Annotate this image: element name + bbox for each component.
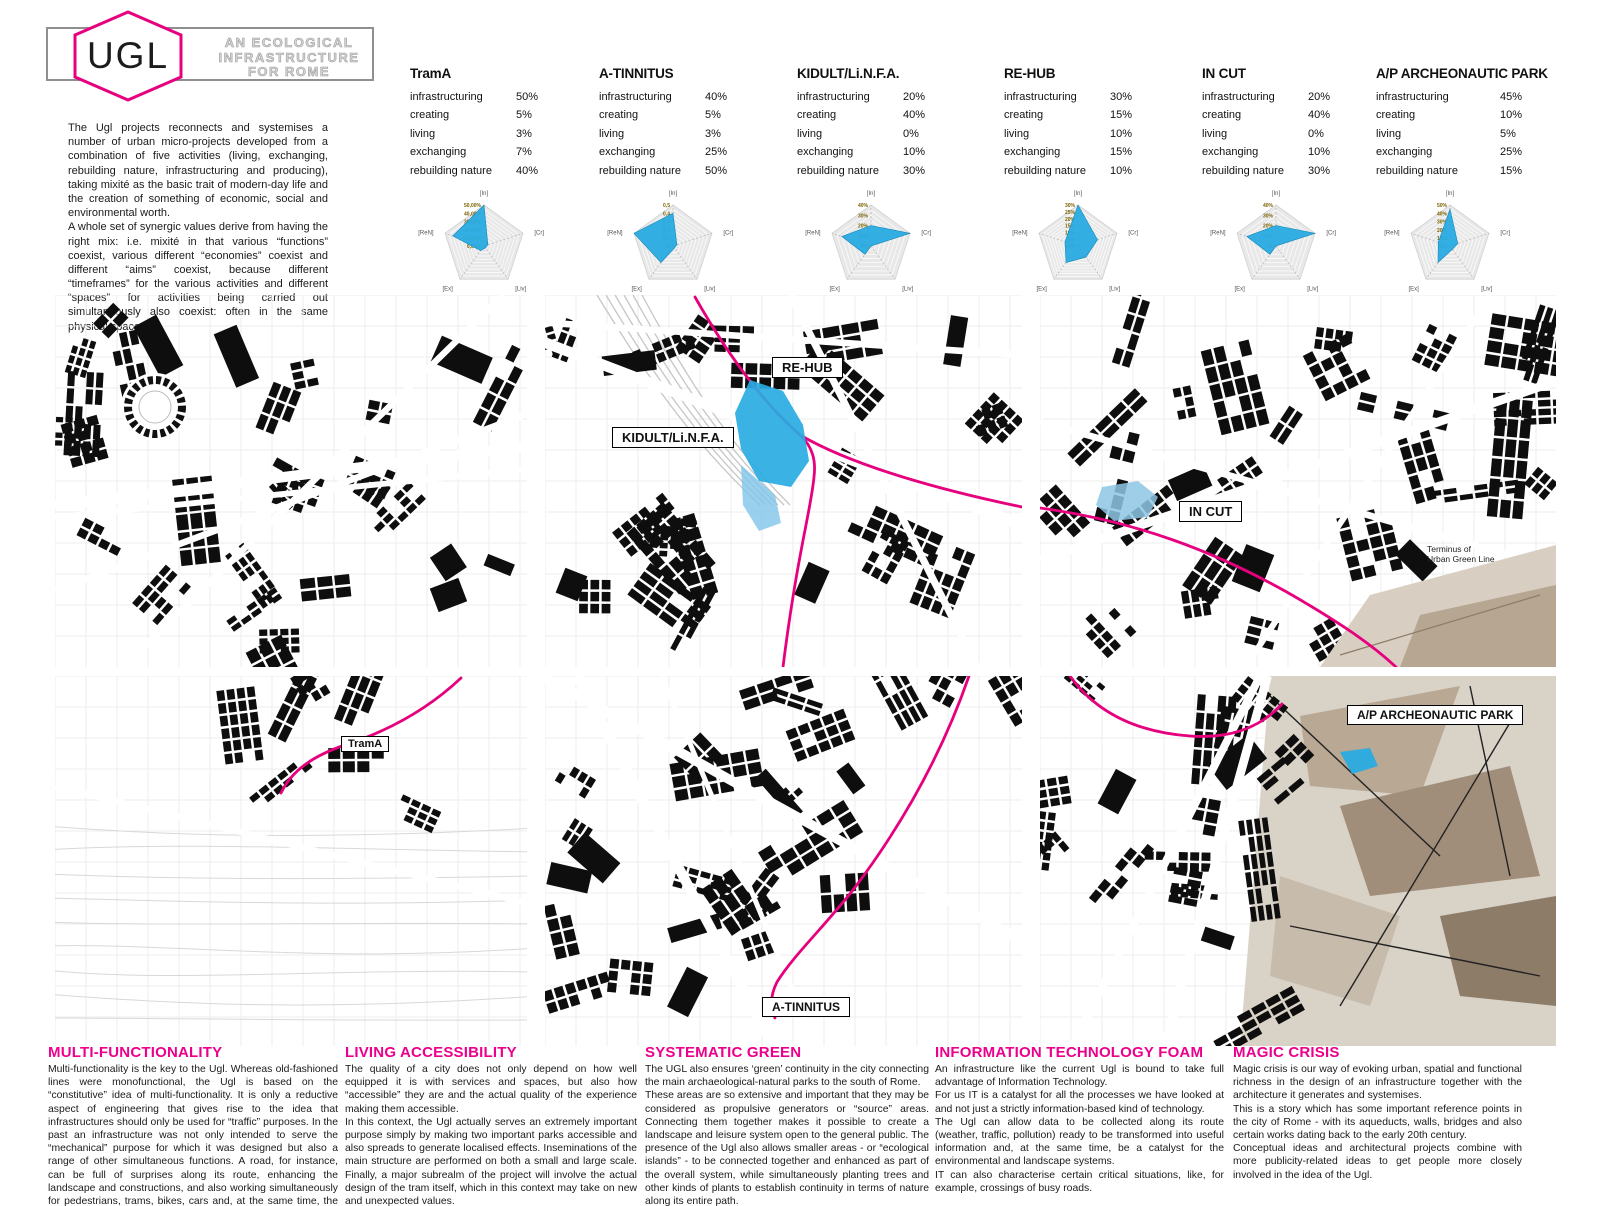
map-label-re-hub: RE-HUB [772, 357, 843, 378]
radar-chart-a-tinnitus: [In][Cr][Liv][Ex][ReN]0,50,40,30,20,10 [585, 189, 755, 297]
svg-text:[Cr]: [Cr] [921, 230, 931, 236]
project-column-ap-park: A/P ARCHEONAUTIC PARK infrastructuring45… [1376, 66, 1609, 302]
project-title: RE-HUB [1004, 66, 1194, 81]
svg-text:[ReN]: [ReN] [1012, 230, 1028, 236]
city-map-canvas [55, 295, 527, 667]
section-systematic-green: SYSTEMATIC GREEN The UGL also ensures ‘g… [645, 1044, 929, 1206]
map-panel-south-center: A-TINNITUS [545, 676, 1022, 1046]
map-panel-northeast: IN CUT Terminus of Urban Green Line [1040, 295, 1556, 667]
stat-row: exchanging15% [1004, 146, 1194, 158]
section-heading: MAGIC CRISIS [1233, 1044, 1522, 1061]
svg-text:[Cr]: [Cr] [1326, 230, 1336, 236]
city-map-canvas [1040, 295, 1556, 667]
radar-chart-trama: [In][Cr][Liv][Ex][ReN]50,00%40,00%30,00%… [396, 189, 566, 297]
svg-text:0,5: 0,5 [663, 203, 670, 209]
stat-row: exchanging25% [599, 146, 789, 158]
project-column-a-tinnitus: A-TINNITUS infrastructuring40% creating5… [599, 66, 789, 302]
section-body: The UGL also ensures ‘green’ continuity … [645, 1063, 929, 1206]
stat-row: living0% [797, 128, 987, 140]
svg-text:[Ex]: [Ex] [631, 286, 642, 292]
stat-row: exchanging25% [1376, 146, 1609, 158]
section-multi-functionality: MULTI-FUNCTIONALITY Multi-functionality … [48, 1044, 338, 1206]
stat-row: infrastructuring50% [410, 91, 600, 103]
section-body: An infrastructure like the current Ugl i… [935, 1063, 1224, 1195]
stat-row: exchanging10% [1202, 146, 1392, 158]
svg-text:[In]: [In] [1446, 191, 1455, 197]
stat-row: exchanging10% [797, 146, 987, 158]
stat-row: exchanging7% [410, 146, 600, 158]
radar-chart-re-hub: [In][Cr][Liv][Ex][ReN]30%25%20%15%10%5%0… [990, 189, 1160, 297]
map-panel-southeast: A/P ARCHEONAUTIC PARK [1040, 676, 1556, 1046]
poster-subtitle: AN ECOLOGICAL INFRASTRUCTURE FOR ROME [206, 36, 372, 80]
stat-row: infrastructuring20% [797, 91, 987, 103]
section-body: The quality of a city does not only depe… [345, 1063, 637, 1206]
svg-text:[Cr]: [Cr] [1500, 230, 1510, 236]
svg-text:25%: 25% [1065, 210, 1076, 216]
svg-text:[ReN]: [ReN] [1210, 230, 1226, 236]
stat-row: rebuilding nature50% [599, 165, 789, 177]
city-map-canvas [545, 676, 1022, 1046]
project-title: TramA [410, 66, 600, 81]
stat-row: rebuilding nature40% [410, 165, 600, 177]
map-note-terminus: Terminus of Urban Green Line [1427, 544, 1495, 564]
stat-row: creating40% [797, 109, 987, 121]
svg-text:[Liv]: [Liv] [1109, 286, 1120, 292]
stat-row: creating5% [599, 109, 789, 121]
logo-text: UGL [70, 10, 186, 102]
stat-row: infrastructuring45% [1376, 91, 1609, 103]
map-label-a-tinnitus: A-TINNITUS [762, 997, 850, 1017]
svg-text:50%: 50% [1437, 203, 1448, 209]
map-panel-southwest: TramA [55, 676, 527, 1046]
stat-row: infrastructuring40% [599, 91, 789, 103]
radar-chart-in-cut: [In][Cr][Liv][Ex][ReN]40%30%20%10%0% [1188, 189, 1358, 297]
section-heading: MULTI-FUNCTIONALITY [48, 1044, 338, 1061]
stat-row: creating10% [1376, 109, 1609, 121]
section-living-accessibility: LIVING ACCESSIBILITY The quality of a ci… [345, 1044, 637, 1206]
radar-chart-kidult: [In][Cr][Liv][Ex][ReN]40%30%20%10%0% [783, 189, 953, 297]
section-heading: INFORMATION TECHNOLOGY FOAM [935, 1044, 1224, 1061]
map-label-ap-park: A/P ARCHEONAUTIC PARK [1347, 705, 1523, 725]
section-magic-crisis: MAGIC CRISIS Magic crisis is our way of … [1233, 1044, 1522, 1182]
project-column-re-hub: RE-HUB infrastructuring30% creating15% l… [1004, 66, 1194, 302]
project-column-trama: TramA infrastructuring50% creating5% liv… [410, 66, 600, 302]
section-heading: SYSTEMATIC GREEN [645, 1044, 929, 1061]
svg-text:30%: 30% [1263, 213, 1274, 219]
stat-row: rebuilding nature30% [1202, 165, 1392, 177]
svg-text:[Ex]: [Ex] [1408, 286, 1419, 292]
stat-row: creating5% [410, 109, 600, 121]
svg-text:[In]: [In] [1074, 191, 1083, 197]
section-information-technology-foam: INFORMATION TECHNOLOGY FOAM An infrastru… [935, 1044, 1224, 1195]
stat-row: rebuilding nature10% [1004, 165, 1194, 177]
svg-text:40%: 40% [858, 203, 869, 209]
map-label-in-cut: IN CUT [1179, 501, 1242, 522]
svg-text:30%: 30% [1065, 203, 1076, 209]
svg-text:40%: 40% [1437, 211, 1448, 217]
stat-row: living3% [599, 128, 789, 140]
stat-row: living5% [1376, 128, 1609, 140]
city-map-canvas [55, 676, 527, 1046]
city-map-canvas [545, 295, 1022, 667]
stat-row: infrastructuring30% [1004, 91, 1194, 103]
svg-text:[Liv]: [Liv] [515, 286, 526, 292]
svg-text:[In]: [In] [867, 191, 876, 197]
map-label-kidult: KIDULT/Li.N.F.A. [612, 427, 734, 448]
project-title: A-TINNITUS [599, 66, 789, 81]
svg-text:[ReN]: [ReN] [418, 230, 434, 236]
stat-row: living10% [1004, 128, 1194, 140]
svg-text:[Cr]: [Cr] [723, 230, 733, 236]
section-body: Multi-functionality is the key to the Ug… [48, 1063, 338, 1206]
svg-text:[Ex]: [Ex] [1036, 286, 1047, 292]
svg-text:30%: 30% [858, 213, 869, 219]
svg-text:[Ex]: [Ex] [829, 286, 840, 292]
project-title: IN CUT [1202, 66, 1392, 81]
svg-text:[Liv]: [Liv] [1481, 286, 1492, 292]
svg-text:[Ex]: [Ex] [442, 286, 453, 292]
svg-text:[ReN]: [ReN] [805, 230, 821, 236]
stat-row: creating15% [1004, 109, 1194, 121]
stat-row: rebuilding nature30% [797, 165, 987, 177]
section-heading: LIVING ACCESSIBILITY [345, 1044, 637, 1061]
section-body: Magic crisis is our way of evoking urban… [1233, 1063, 1522, 1182]
svg-text:[Liv]: [Liv] [1307, 286, 1318, 292]
svg-text:50,00%: 50,00% [464, 203, 482, 209]
stat-row: infrastructuring20% [1202, 91, 1392, 103]
stat-row: creating40% [1202, 109, 1392, 121]
poster-page: UGL AN ECOLOGICAL INFRASTRUCTURE FOR ROM… [0, 0, 1609, 1206]
stat-row: living3% [410, 128, 600, 140]
project-column-kidult: KIDULT/Li.N.F.A. infrastructuring20% cre… [797, 66, 987, 302]
stat-row: rebuilding nature15% [1376, 165, 1609, 177]
city-map-canvas [1040, 676, 1556, 1046]
svg-text:[In]: [In] [1272, 191, 1281, 197]
svg-text:[Liv]: [Liv] [704, 286, 715, 292]
project-title: A/P ARCHEONAUTIC PARK [1376, 66, 1609, 81]
svg-text:40%: 40% [1263, 203, 1274, 209]
svg-text:[Liv]: [Liv] [902, 286, 913, 292]
project-title: KIDULT/Li.N.F.A. [797, 66, 987, 81]
radar-chart-ap-park: [In][Cr][Liv][Ex][ReN]50%40%30%20%10%0% [1362, 189, 1532, 297]
svg-text:[ReN]: [ReN] [1384, 230, 1400, 236]
map-label-trama: TramA [341, 736, 389, 752]
svg-text:[In]: [In] [669, 191, 678, 197]
map-panel-north-center: RE-HUB KIDULT/Li.N.F.A. [545, 295, 1022, 667]
stat-row: living0% [1202, 128, 1392, 140]
svg-text:[Ex]: [Ex] [1234, 286, 1245, 292]
svg-text:[ReN]: [ReN] [607, 230, 623, 236]
svg-text:[Cr]: [Cr] [1128, 230, 1138, 236]
map-panel-northwest [55, 295, 527, 667]
svg-text:[Cr]: [Cr] [534, 230, 544, 236]
svg-text:[In]: [In] [480, 191, 489, 197]
